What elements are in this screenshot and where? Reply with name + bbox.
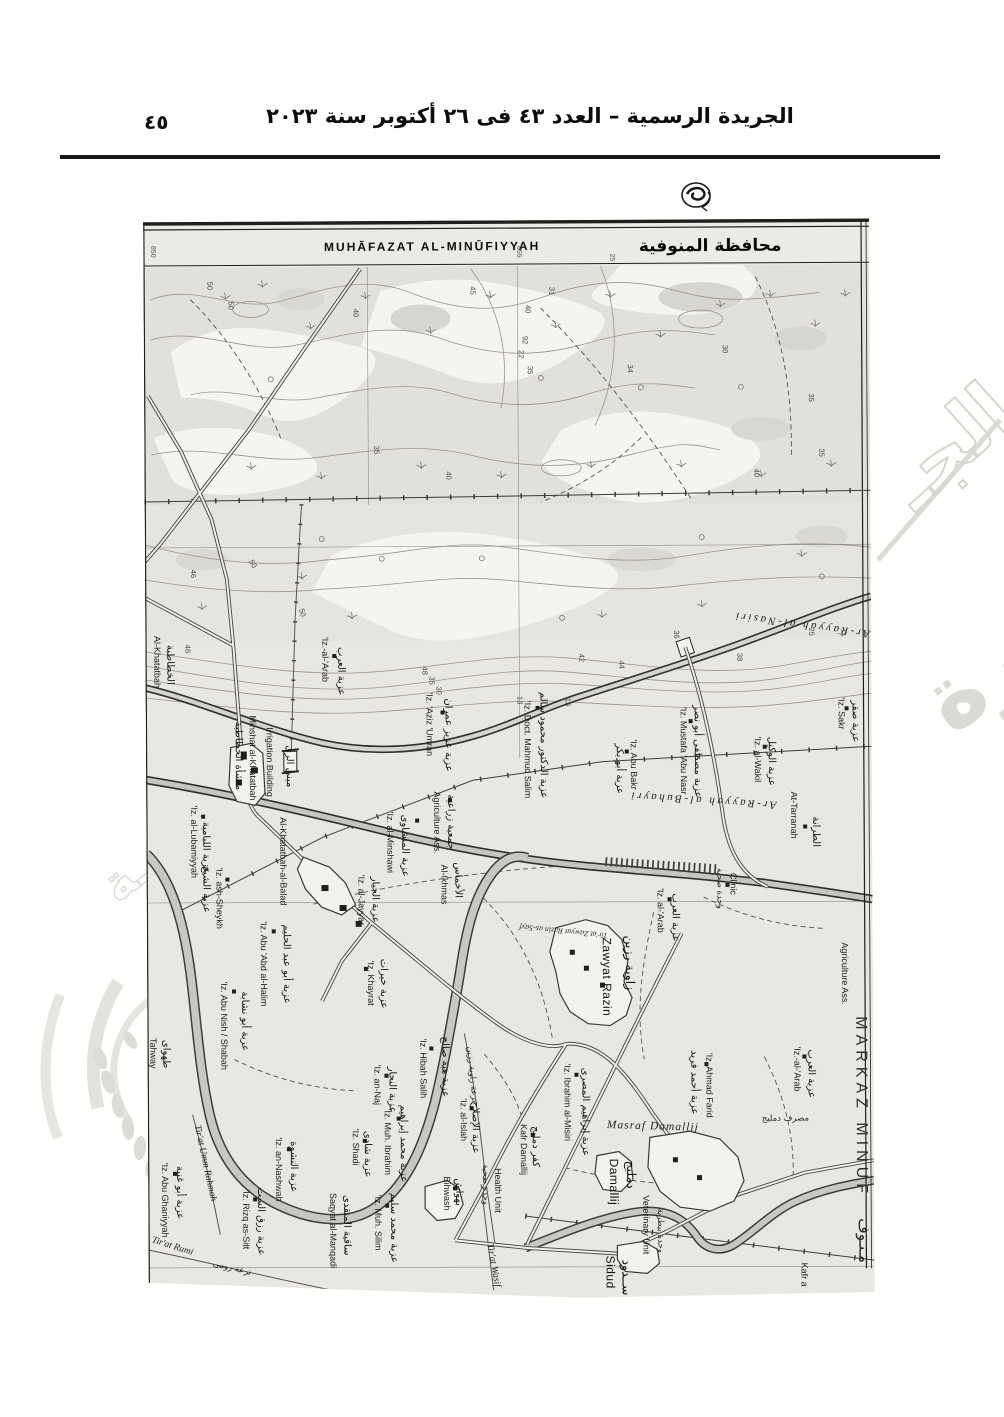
- map-label: 'Iz. al-Lubamiyyah: [189, 806, 199, 878]
- map-label: عزبة أبو عبد الحليم: [281, 924, 294, 1003]
- map-title-arabic: محافظة المنوفية: [639, 236, 782, 257]
- map-label: 40: [752, 469, 761, 477]
- map-label: 'Iz. Abu Bakr: [629, 739, 639, 789]
- map-title-latin: MUHĀFAZAT AL-MINŪFIYYAH: [324, 239, 540, 254]
- map-label: عزبة العرب: [335, 647, 346, 695]
- map-label: 'Iz. an-Naj: [372, 1065, 382, 1105]
- map-label: 50: [205, 282, 214, 290]
- map-label: 34: [626, 364, 635, 372]
- map-label: 40: [444, 471, 453, 479]
- map-label: عزبة الوكيل: [766, 737, 777, 786]
- map-label: عزبة محمد إبراهيم: [398, 1105, 409, 1183]
- map-label: عزبة شادى: [362, 1131, 373, 1178]
- map-label: عزبة أحمد فريد: [688, 1050, 701, 1114]
- map-label: Veterinary Unit: [641, 1195, 651, 1255]
- map-label: مصرف دمليج: [762, 1114, 809, 1124]
- map-label: الخطاطبة: [164, 645, 175, 685]
- map-label: عزبة المنشاوى: [399, 815, 410, 877]
- map-label: طهواى: [160, 1040, 171, 1068]
- map-label: 46: [189, 570, 198, 578]
- map-label: 'Iz. an-Nashwah: [274, 1137, 284, 1201]
- map-label: Zawyat Razin: [600, 938, 614, 1017]
- map-label: 50: [226, 302, 235, 310]
- map-label: 'Iz. Ahmad Farid: [704, 1053, 714, 1118]
- map-label: عزبة أبو غنية: [174, 1166, 187, 1219]
- map-label: دمليج: [624, 1160, 639, 1188]
- map-label: 'Iz. Hibah Salih: [418, 1039, 428, 1099]
- map-label: 'Iz.-al-'Arab: [792, 1047, 802, 1092]
- map-label: Health Unit: [493, 1168, 503, 1213]
- map-label: 92: [521, 336, 530, 344]
- map-label: 35: [817, 448, 826, 456]
- map-label: عزبة أبو بكر: [614, 742, 627, 794]
- map-label: 'Iz. Khayrat: [366, 961, 376, 1006]
- map-label: 'Iz. al-Wakil: [753, 737, 763, 782]
- map-label: 36: [672, 630, 681, 638]
- map-label: 42: [577, 654, 586, 662]
- map-label: عزبة الجيار: [369, 876, 380, 923]
- map-label: 13: [563, 698, 572, 706]
- map-label: 'Iz. Rizq as-Sitt: [241, 1189, 251, 1249]
- map-label: Agriculture Ass.: [432, 791, 442, 854]
- map-label: 'Iz. Muh. Ibrahim: [383, 1109, 393, 1175]
- map-label: ساقية المنقدى: [341, 1195, 352, 1256]
- map-label: مـنـوف: [855, 1218, 873, 1263]
- map-label: Irrigation Building: [265, 727, 275, 797]
- map-label: 'Iz. Ibrahim al-Misiri: [562, 1064, 572, 1141]
- map-label: 31: [547, 287, 556, 295]
- watermark-text: صورة: [900, 513, 1004, 754]
- map-label: 22: [517, 350, 526, 358]
- map-label: عزبة محمد سليم: [388, 1193, 399, 1263]
- map-label: 'Iz. al-Minshawi: [385, 812, 395, 873]
- map-label: 'Iz.-al-'Arab: [320, 637, 330, 682]
- map-label: 35: [427, 676, 436, 684]
- map-label: 'Iz. Abu Ghaniyyah: [160, 1163, 170, 1238]
- map-label: عزبة النجار: [386, 1066, 397, 1113]
- map-label: 'Iz. Abu Nish / Shabah: [219, 982, 229, 1070]
- map-label: Minshat al-Khatatbah: [248, 715, 258, 800]
- map-label: عزبة رزق الست: [255, 1187, 266, 1255]
- map-label: زاوية رزين: [622, 935, 638, 990]
- map-label: 46: [183, 645, 192, 653]
- map-label: Saqyat al-Manqadi: [328, 1193, 338, 1268]
- map-label: عزبة النشوة: [288, 1141, 299, 1192]
- topographic-map: MUHĀFAZAT AL-MINŪFIYYAH محافظة المنوفية …: [143, 218, 875, 1300]
- map-label: وحدة صحية: [480, 1164, 490, 1205]
- map-label: Kafr Damallij: [519, 1124, 529, 1175]
- map-label: Al-Khatatbah-al-Balad: [278, 817, 288, 905]
- map-label: 35: [807, 393, 816, 401]
- map-label: Damallij: [607, 1159, 621, 1206]
- map-label: 'Iz. Sakr: [836, 697, 846, 729]
- map-label: Kafr a: [799, 1263, 809, 1287]
- map-label: Bihwash: [442, 1176, 452, 1210]
- map-label: وحدة بيطرية: [655, 1208, 665, 1253]
- map-label: 'Iz. al-Islah: [459, 1098, 469, 1141]
- map-label: 38: [735, 653, 744, 661]
- map-label: MARKAZ MINUF: [852, 1016, 870, 1198]
- map-label: 35: [372, 446, 381, 454]
- map-label: 'Iz. Abu 'Abd al-Halim: [259, 921, 269, 1006]
- map-label: Agriculture Ass.: [840, 942, 850, 1005]
- map-canvas: MUHĀFAZAT AL-MINŪFIYYAH محافظة المنوفية …: [143, 218, 875, 1300]
- map-label: 'Iz. Doct. Mahmud Salim: [523, 701, 534, 798]
- map-label: عزبة الدكتور محمود سالم: [537, 692, 549, 798]
- map-label: 30: [434, 686, 443, 694]
- map-label: كفر دمليج: [530, 1126, 541, 1167]
- map-label: ســدود: [618, 1259, 634, 1295]
- map-label: 'Iz. al-Jayyar: [356, 875, 366, 925]
- map-label: 'Iz. al-'Arab: [655, 888, 665, 933]
- map-label: عزبة خيرات: [378, 959, 389, 1009]
- map-label: وحدة صحية: [714, 868, 724, 909]
- map-label: جمعية زراعية: [445, 794, 456, 849]
- map-label: الأخماس: [452, 862, 465, 898]
- gazette-page: ٤٥ الجريدة الرسمية – العدد ٤٣ فى ٢٦ أكتو…: [0, 0, 1004, 1417]
- map-label: عزبة أبو نشابة: [239, 991, 252, 1051]
- map-label: 48: [420, 667, 429, 675]
- map-label: 850: [149, 246, 156, 258]
- map-label: 30: [721, 345, 730, 353]
- map-label: 35: [526, 366, 535, 374]
- map-label: عزبة العرب: [670, 893, 681, 941]
- map-label: 'Iz. Mustafa 'Abu Nasr: [679, 707, 689, 795]
- map-label: بهواش: [453, 1178, 464, 1206]
- map-label: 45: [468, 286, 477, 294]
- map-label: Tahway: [148, 1038, 158, 1069]
- map-label: عزبة عزيز عمران: [442, 698, 453, 771]
- gazette-stamp-icon: [668, 172, 724, 224]
- map-label: مبنى الرى: [284, 745, 295, 787]
- map-label: 40: [351, 309, 360, 317]
- map-label: 'Iz. 'Aziz 'Umran: [424, 692, 434, 756]
- map-label: عزبة هبة صالح: [439, 1036, 450, 1097]
- map-label: Clinic: [728, 873, 738, 896]
- map-label: 25: [608, 254, 615, 262]
- map-label: عزبة إبراهيم المصرى: [579, 1068, 590, 1156]
- map-label: Al-Khatatbah: [152, 636, 162, 688]
- map-label: عزبة اللبامية: [200, 822, 211, 874]
- map-label: At-Tarranah: [789, 792, 799, 839]
- map-label: 40: [523, 305, 532, 313]
- map-label: الطرانة: [810, 816, 821, 847]
- watermark-text: الجـ: [868, 366, 1004, 526]
- map-label: عزبة العرب: [805, 1049, 816, 1097]
- map-label: عزبة صقر: [850, 699, 861, 742]
- map-label: 855: [515, 246, 522, 258]
- map-label: 'Iz. ash-Sheykh: [214, 868, 224, 929]
- map-label: 'Iz. Shadi: [351, 1129, 361, 1166]
- map-label: Al-Ikhmas: [439, 864, 449, 905]
- map-label: عزبة الإصلاح: [470, 1101, 481, 1153]
- map-label: Sidud: [603, 1256, 617, 1289]
- map-label: عزبة مصطفى أبو نصر: [692, 704, 705, 798]
- map-label: 'Iz. Muh. Silim: [373, 1195, 383, 1251]
- map-label: 44: [617, 660, 626, 668]
